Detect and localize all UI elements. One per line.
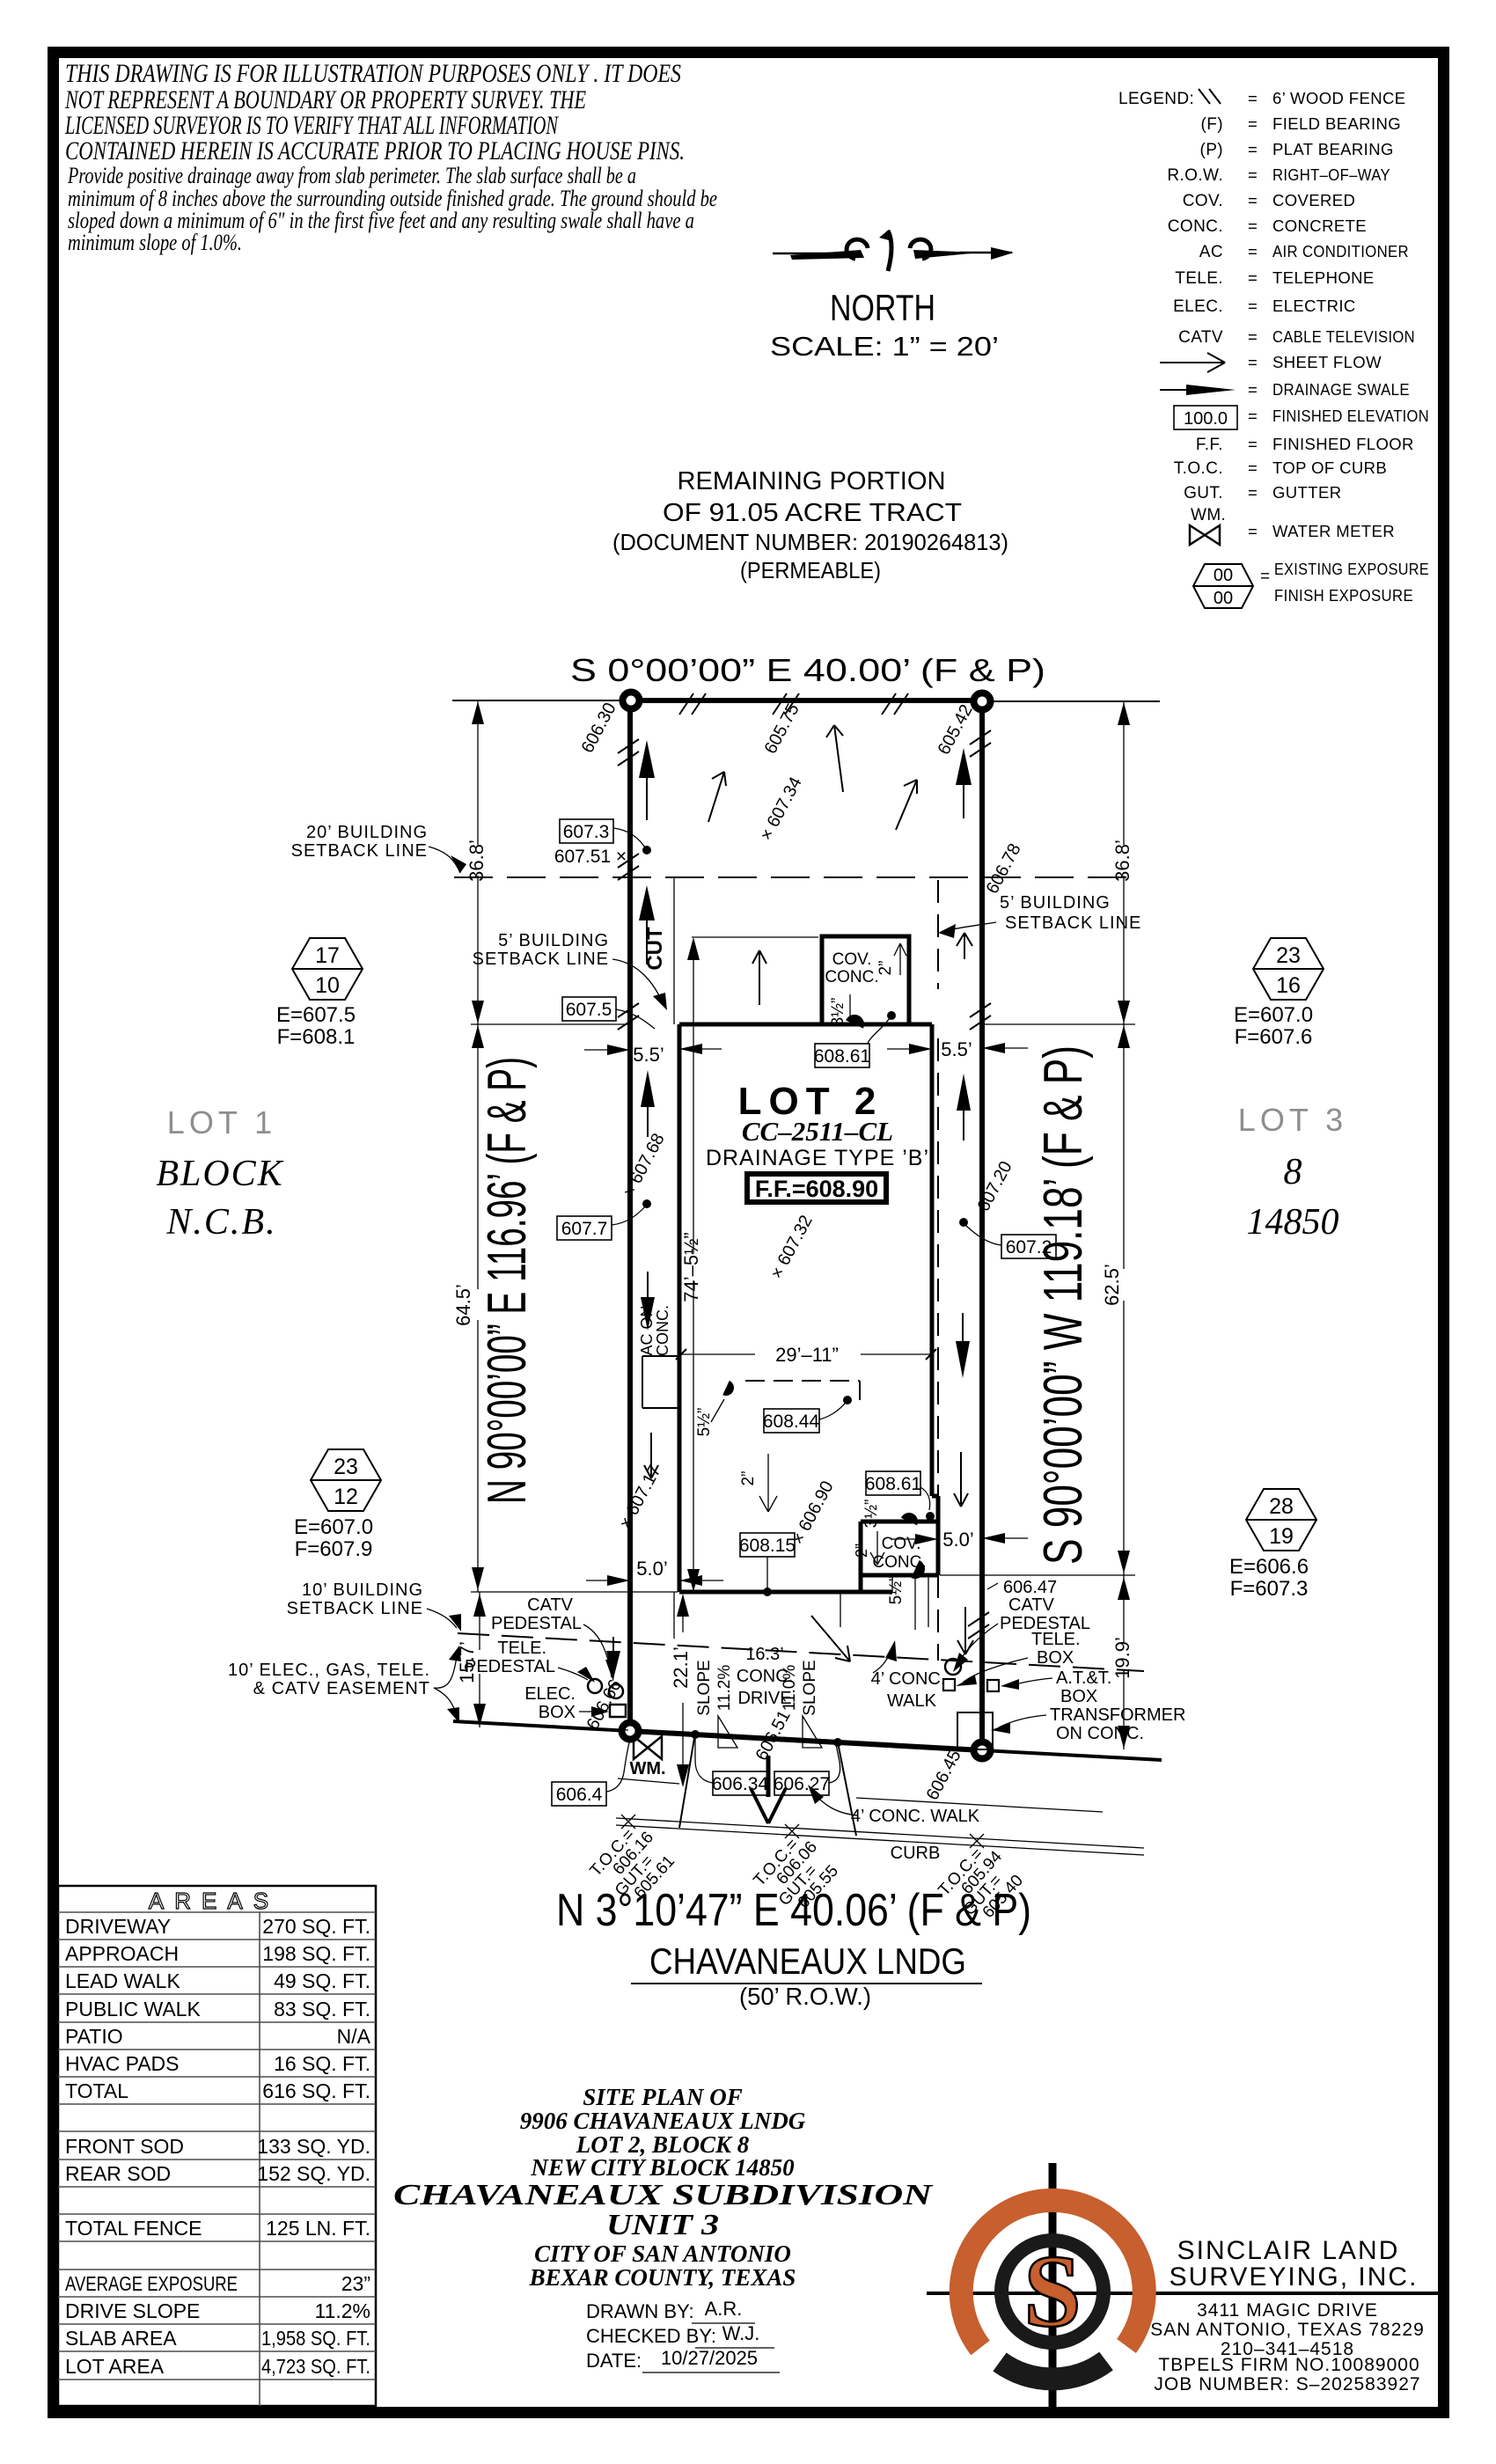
svg-text:minimum slope of 1.0%.: minimum slope of 1.0%.	[68, 230, 242, 255]
svg-text:64.5’: 64.5’	[452, 1284, 474, 1326]
svg-text:16 SQ. FT.: 16 SQ. FT.	[274, 2052, 370, 2075]
svg-text:CURB: CURB	[891, 1844, 941, 1863]
svg-text:607.3: 607.3	[563, 822, 610, 842]
svg-text:F=607.3: F=607.3	[1230, 1577, 1309, 1601]
svg-text:CITY OF SAN ANTONIO: CITY OF SAN ANTONIO	[534, 2240, 791, 2267]
svg-text:10/27/2025: 10/27/2025	[661, 2347, 758, 2369]
svg-text:10: 10	[315, 973, 340, 998]
svg-text:Provide positive drainage away: Provide positive drainage away from slab…	[67, 163, 636, 188]
svg-text:COV.: COV.	[882, 1535, 921, 1553]
svg-text:S 0°00’00” E 40.00’ (F & P): S 0°00’00” E 40.00’ (F & P)	[570, 652, 1045, 688]
svg-text:11.2%: 11.2%	[314, 2299, 370, 2322]
svg-text:FINISHED FLOOR: FINISHED FLOOR	[1272, 435, 1414, 453]
svg-text:5’ BUILDING: 5’ BUILDING	[1000, 893, 1111, 913]
svg-text:N 3°10’47” E 40.06’ (F & P): N 3°10’47” E 40.06’ (F & P)	[556, 1885, 1031, 1936]
svg-text:=: =	[1248, 407, 1258, 425]
svg-text:GUTTER: GUTTER	[1272, 483, 1341, 502]
svg-text:HVAC PADS: HVAC PADS	[65, 2052, 180, 2075]
svg-text:9906 CHAVANEAUX LNDG: 9906 CHAVANEAUX LNDG	[520, 2108, 806, 2134]
svg-text:74’–5½”: 74’–5½”	[680, 1232, 702, 1302]
svg-text:TELEPHONE: TELEPHONE	[1272, 268, 1375, 287]
svg-text:ELECTRIC: ELECTRIC	[1272, 297, 1356, 315]
svg-text:100.0: 100.0	[1184, 409, 1228, 429]
svg-text:=: =	[1248, 114, 1258, 133]
svg-text:PUBLIC WALK: PUBLIC WALK	[65, 1998, 201, 2020]
svg-text:A.T.&T.: A.T.&T.	[1056, 1668, 1111, 1688]
svg-text:T.O.C.: T.O.C.	[1174, 459, 1223, 478]
svg-text:S: S	[1023, 2233, 1082, 2349]
svg-text:NEW CITY BLOCK 14850: NEW CITY BLOCK 14850	[530, 2154, 795, 2181]
svg-text:DRAWN BY:: DRAWN BY:	[586, 2300, 694, 2322]
svg-text:E=607.0: E=607.0	[1234, 1003, 1313, 1027]
svg-text:62.5’: 62.5’	[1101, 1264, 1123, 1306]
svg-text:5.0’: 5.0’	[942, 1529, 973, 1551]
svg-text:E=607.0: E=607.0	[294, 1515, 373, 1539]
svg-text:20’ BUILDING: 20’ BUILDING	[306, 823, 428, 842]
svg-text:3½”: 3½”	[862, 1500, 881, 1529]
svg-text:=: =	[1248, 89, 1258, 107]
svg-text:LOT AREA: LOT AREA	[65, 2355, 165, 2378]
svg-text:12: 12	[334, 1485, 358, 1509]
svg-text:CHECKED BY:: CHECKED BY:	[586, 2325, 716, 2347]
svg-text:608.44: 608.44	[763, 1412, 820, 1432]
svg-text:DRAINAGE SWALE: DRAINAGE SWALE	[1272, 380, 1410, 399]
svg-text:=: =	[1248, 522, 1258, 540]
svg-text:PEDESTAL: PEDESTAL	[491, 1614, 582, 1633]
svg-text:CC–2511–CL: CC–2511–CL	[742, 1116, 893, 1147]
svg-text:00: 00	[1214, 589, 1233, 608]
svg-text:11.0%: 11.0%	[781, 1665, 799, 1712]
svg-text:125 LN. FT.: 125 LN. FT.	[266, 2217, 370, 2240]
svg-text:TOP OF CURB: TOP OF CURB	[1272, 458, 1387, 477]
svg-text:TELE.: TELE.	[1031, 1630, 1081, 1649]
svg-text:606.4: 606.4	[556, 1785, 603, 1805]
svg-text:SLAB AREA: SLAB AREA	[65, 2327, 177, 2350]
svg-text:(F): (F)	[1201, 115, 1223, 134]
svg-text:CONTAINED HEREIN IS ACCURATE P: CONTAINED HEREIN IS ACCURATE PRIOR TO PL…	[65, 136, 685, 165]
svg-text:23: 23	[1276, 943, 1301, 968]
svg-text:SETBACK LINE: SETBACK LINE	[291, 841, 428, 861]
svg-text:2”: 2”	[739, 1471, 758, 1486]
svg-text:ELEC.: ELEC.	[1173, 297, 1223, 316]
svg-text:19.9’: 19.9’	[1111, 1637, 1133, 1679]
svg-text:10’ ELEC., GAS, TELE.: 10’ ELEC., GAS, TELE.	[228, 1661, 430, 1680]
svg-text:36.8’: 36.8’	[466, 840, 488, 882]
svg-text:606.47: 606.47	[1003, 1578, 1057, 1597]
svg-text:=: =	[1248, 191, 1258, 209]
svg-text:FINISHED ELEVATION: FINISHED ELEVATION	[1272, 407, 1429, 425]
svg-text:608.61: 608.61	[865, 1474, 921, 1494]
svg-text:198 SQ. FT.: 198 SQ. FT.	[262, 1942, 370, 1965]
svg-text:F=607.6: F=607.6	[1235, 1025, 1313, 1049]
svg-text:W.J.: W.J.	[722, 2322, 760, 2344]
svg-text:16.3’: 16.3’	[745, 1645, 783, 1664]
svg-text:AREAS: AREAS	[149, 1888, 279, 1914]
svg-text:=: =	[1248, 216, 1258, 235]
svg-text:=: =	[1248, 297, 1258, 315]
svg-text:F.F.: F.F.	[1196, 436, 1223, 454]
svg-text:3½”: 3½”	[829, 998, 847, 1027]
svg-text:152 SQ. YD.: 152 SQ. YD.	[257, 2162, 370, 2185]
svg-text:DRAINAGE TYPE ’B’: DRAINAGE TYPE ’B’	[706, 1146, 929, 1170]
svg-text:AIR CONDITIONER: AIR CONDITIONER	[1272, 242, 1409, 260]
svg-text:133 SQ. YD.: 133 SQ. YD.	[257, 2135, 370, 2158]
svg-text:TOTAL FENCE: TOTAL FENCE	[65, 2217, 202, 2240]
svg-text:WM.: WM.	[1191, 506, 1226, 524]
svg-text:FINISH EXPOSURE: FINISH EXPOSURE	[1274, 586, 1413, 605]
svg-text:R.O.W.: R.O.W.	[1167, 166, 1223, 185]
svg-text:TOTAL: TOTAL	[65, 2079, 128, 2102]
svg-text:APPROACH: APPROACH	[65, 1942, 179, 1965]
svg-text:1,958 SQ. FT.: 1,958 SQ. FT.	[261, 2327, 370, 2350]
svg-text:NORTH: NORTH	[830, 287, 935, 328]
svg-text:CONC.: CONC.	[654, 1305, 671, 1356]
svg-text:5.5’: 5.5’	[633, 1044, 664, 1066]
svg-text:JOB NUMBER: S–202583927: JOB NUMBER: S–202583927	[1154, 2374, 1420, 2394]
svg-text:COV.: COV.	[832, 950, 872, 969]
svg-text:PEDESTAL: PEDESTAL	[465, 1657, 555, 1676]
svg-text:29’–11”: 29’–11”	[775, 1344, 839, 1366]
svg-text:WM.: WM.	[629, 1759, 665, 1778]
svg-text:RIGHT–OF–WAY: RIGHT–OF–WAY	[1272, 165, 1390, 184]
svg-text:CATV: CATV	[1178, 328, 1223, 347]
svg-text:5.5’: 5.5’	[941, 1038, 972, 1060]
svg-text:SHEET FLOW: SHEET FLOW	[1272, 353, 1382, 371]
svg-text:DRIVE SLOPE: DRIVE SLOPE	[65, 2299, 200, 2322]
svg-text:=: =	[1260, 568, 1271, 586]
svg-text:CUT: CUT	[643, 927, 667, 971]
svg-text:607.7: 607.7	[561, 1219, 608, 1239]
svg-text:CONC.: CONC.	[872, 1553, 926, 1572]
svg-text:BOX: BOX	[539, 1703, 576, 1722]
svg-text:COVERED: COVERED	[1272, 191, 1355, 209]
svg-text:19: 19	[1269, 1524, 1294, 1549]
svg-text:=: =	[1248, 353, 1258, 371]
svg-text:28: 28	[1269, 1494, 1294, 1519]
svg-text:CATV: CATV	[527, 1595, 574, 1615]
svg-text:LOT 1: LOT 1	[167, 1104, 276, 1140]
svg-text:N.C.B.: N.C.B.	[165, 1202, 276, 1243]
svg-text:BOX: BOX	[1060, 1687, 1097, 1706]
svg-text:00: 00	[1214, 566, 1233, 585]
svg-text:270 SQ. FT.: 270 SQ. FT.	[262, 1915, 370, 1938]
svg-text:3411 MAGIC DRIVE: 3411 MAGIC DRIVE	[1197, 2300, 1378, 2321]
svg-text:608.61: 608.61	[814, 1046, 870, 1067]
svg-text:TRANSFORMER: TRANSFORMER	[1050, 1705, 1185, 1725]
svg-text:4,723 SQ. FT.: 4,723 SQ. FT.	[261, 2355, 370, 2378]
svg-text:17: 17	[315, 943, 340, 968]
svg-text:23”: 23”	[341, 2272, 370, 2295]
svg-text:(PERMEABLE): (PERMEABLE)	[740, 557, 881, 583]
svg-text:CHAVANEAUX LNDG: CHAVANEAUX LNDG	[649, 1940, 966, 1982]
svg-text:THIS DRAWING IS FOR ILLUSTRATI: THIS DRAWING IS FOR ILLUSTRATION PURPOSE…	[65, 59, 681, 88]
svg-text:606.27: 606.27	[774, 1774, 830, 1794]
svg-text:=: =	[1248, 140, 1258, 158]
svg-text:EXISTING EXPOSURE: EXISTING EXPOSURE	[1274, 560, 1429, 578]
svg-text:22.1’: 22.1’	[670, 1646, 692, 1689]
svg-text:ON CONC.: ON CONC.	[1056, 1724, 1144, 1743]
svg-text:REMAINING PORTION: REMAINING PORTION	[678, 467, 946, 495]
svg-text:N/A: N/A	[337, 2025, 371, 2048]
svg-text:SCALE: 1” = 20’: SCALE: 1” = 20’	[770, 331, 999, 362]
svg-text:WATER METER: WATER METER	[1272, 522, 1395, 540]
svg-text:5.0’: 5.0’	[636, 1558, 667, 1580]
svg-text:TELE.: TELE.	[497, 1639, 546, 1658]
svg-text:36.8’: 36.8’	[1111, 840, 1133, 882]
svg-text:PATIO: PATIO	[65, 2025, 123, 2048]
svg-text:SETBACK LINE: SETBACK LINE	[1005, 913, 1141, 933]
svg-text:23: 23	[334, 1455, 358, 1479]
svg-text:607.5: 607.5	[566, 1000, 612, 1020]
svg-text:=: =	[1248, 242, 1258, 260]
svg-text:SURVEYING, INC.: SURVEYING, INC.	[1170, 2262, 1419, 2292]
svg-text:608.15: 608.15	[739, 1536, 796, 1556]
svg-text:=: =	[1248, 268, 1258, 287]
svg-text:E=606.6: E=606.6	[1229, 1555, 1309, 1579]
svg-text:5½”: 5½”	[695, 1408, 714, 1437]
svg-text:11.2%: 11.2%	[715, 1665, 734, 1712]
svg-text:2”: 2”	[876, 961, 895, 976]
svg-text:CHAVANEAUX SUBDIVISION: CHAVANEAUX SUBDIVISION	[393, 2179, 934, 2211]
svg-text:CONC.: CONC.	[1168, 217, 1223, 236]
svg-text:=: =	[1248, 327, 1258, 346]
svg-text:SETBACK LINE: SETBACK LINE	[473, 950, 609, 969]
svg-text:(50’ R.O.W.): (50’ R.O.W.)	[739, 1983, 871, 2010]
svg-text:SETBACK LINE: SETBACK LINE	[287, 1599, 423, 1618]
svg-text:607.51 ×: 607.51 ×	[554, 847, 627, 867]
svg-text:BLOCK: BLOCK	[156, 1154, 283, 1194]
svg-text:=: =	[1248, 435, 1258, 453]
svg-text:SLOPE: SLOPE	[801, 1660, 819, 1715]
svg-text:BEXAR COUNTY, TEXAS: BEXAR COUNTY, TEXAS	[529, 2264, 796, 2291]
svg-text:SITE PLAN OF: SITE PLAN OF	[583, 2084, 743, 2110]
svg-text:LEGEND:: LEGEND:	[1118, 90, 1194, 108]
svg-text:E=607.5: E=607.5	[276, 1003, 356, 1027]
svg-text:8: 8	[1284, 1152, 1302, 1192]
svg-text:4’ CONC. WALK: 4’ CONC. WALK	[851, 1807, 980, 1826]
svg-text:49 SQ. FT.: 49 SQ. FT.	[274, 1969, 370, 1992]
svg-text:F.F.=608.90: F.F.=608.90	[755, 1176, 878, 1202]
svg-text:=: =	[1248, 458, 1258, 477]
svg-text:S 90°00’00” W 119.18’ (F & P): S 90°00’00” W 119.18’ (F & P)	[1033, 1045, 1094, 1565]
svg-text:FRONT SOD: FRONT SOD	[65, 2135, 184, 2158]
svg-text:6’ WOOD FENCE: 6’ WOOD FENCE	[1272, 89, 1406, 107]
svg-text:F=607.9: F=607.9	[295, 1537, 373, 1561]
svg-text:OF 91.05 ACRE TRACT: OF 91.05 ACRE TRACT	[663, 499, 962, 527]
svg-text:LOT 3: LOT 3	[1238, 1102, 1347, 1138]
svg-text:& CATV EASEMENT: & CATV EASEMENT	[253, 1679, 430, 1698]
svg-text:606.34: 606.34	[712, 1774, 769, 1794]
svg-text:PLAT BEARING: PLAT BEARING	[1272, 140, 1394, 158]
svg-text:4’ CONC.: 4’ CONC.	[871, 1669, 946, 1689]
svg-text:SLOPE: SLOPE	[695, 1660, 714, 1715]
svg-text:16: 16	[1276, 973, 1301, 998]
svg-text:AC ON: AC ON	[638, 1305, 656, 1355]
svg-text:2”: 2”	[853, 1544, 870, 1558]
svg-text:FIELD BEARING: FIELD BEARING	[1272, 114, 1401, 133]
svg-text:AC: AC	[1199, 243, 1223, 261]
svg-text:DRIVEWAY: DRIVEWAY	[65, 1915, 171, 1938]
svg-text:TELE.: TELE.	[1175, 269, 1223, 288]
svg-text:=: =	[1248, 380, 1258, 399]
svg-text:14850: 14850	[1247, 1202, 1339, 1243]
svg-text:COV.: COV.	[1183, 192, 1223, 210]
svg-text:TBPELS FIRM NO.10089000: TBPELS FIRM NO.10089000	[1158, 2355, 1419, 2375]
svg-text:N 90°00’00” E 116.96’ (F & P): N 90°00’00” E 116.96’ (F & P)	[477, 1057, 538, 1504]
svg-text:=: =	[1248, 483, 1258, 502]
svg-text:(DOCUMENT NUMBER: 20190264813: (DOCUMENT NUMBER: 20190264813)	[612, 529, 1008, 555]
svg-text:BOX: BOX	[1037, 1648, 1074, 1668]
svg-text:DATE:: DATE:	[586, 2350, 642, 2372]
svg-text:ELEC.: ELEC.	[524, 1684, 576, 1704]
svg-text:SAN ANTONIO, TEXAS 78229: SAN ANTONIO, TEXAS 78229	[1150, 2320, 1425, 2340]
svg-text:10’ BUILDING: 10’ BUILDING	[302, 1580, 423, 1600]
svg-text:UNIT 3: UNIT 3	[606, 2209, 719, 2241]
svg-text:CONCRETE: CONCRETE	[1272, 216, 1367, 235]
svg-text:LEAD WALK: LEAD WALK	[65, 1969, 180, 1992]
svg-text:5’ BUILDING: 5’ BUILDING	[498, 931, 609, 950]
svg-text:616 SQ. FT.: 616 SQ. FT.	[262, 2079, 370, 2102]
svg-text:AVERAGE EXPOSURE: AVERAGE EXPOSURE	[65, 2272, 238, 2295]
svg-text:SINCLAIR LAND: SINCLAIR LAND	[1177, 2236, 1400, 2265]
svg-text:=: =	[1248, 165, 1258, 184]
svg-text:GUT.: GUT.	[1184, 484, 1223, 502]
svg-text:WALK: WALK	[887, 1691, 937, 1711]
svg-text:REAR SOD: REAR SOD	[65, 2162, 171, 2185]
svg-text:83 SQ. FT.: 83 SQ. FT.	[274, 1998, 370, 2020]
svg-text:CABLE TELEVISION: CABLE TELEVISION	[1272, 327, 1415, 346]
svg-text:A.R.: A.R.	[705, 2298, 743, 2320]
svg-text:F=608.1: F=608.1	[277, 1025, 356, 1049]
svg-text:CONC.: CONC.	[825, 968, 878, 986]
svg-text:(P): (P)	[1199, 141, 1223, 159]
svg-text:5½”: 5½”	[887, 1576, 906, 1605]
svg-text:CATV: CATV	[1008, 1595, 1055, 1615]
